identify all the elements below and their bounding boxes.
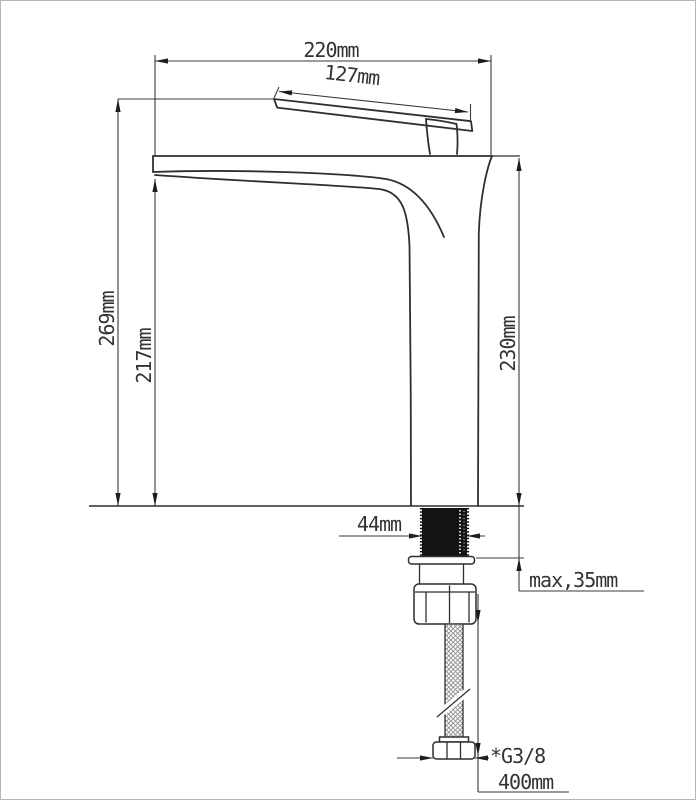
drawing-svg: 220mm 127mm 269mm 217mm 230mm 44mm max,3… bbox=[1, 1, 696, 800]
mounting-nut bbox=[414, 584, 476, 624]
faucet-technical-drawing: 220mm 127mm 269mm 217mm 230mm 44mm max,3… bbox=[0, 0, 696, 800]
dim-label-body-height: 230mm bbox=[496, 315, 520, 371]
dim-label-handle-length: 127mm bbox=[323, 60, 382, 90]
handle-lever bbox=[274, 99, 472, 131]
dim-label-stem-width: 44mm bbox=[357, 512, 402, 536]
mounting-assembly bbox=[409, 508, 477, 624]
dim-label-thread-size: *G3/8 bbox=[490, 744, 545, 768]
faucet-body-outline bbox=[153, 99, 520, 506]
clamp-flange bbox=[409, 557, 475, 565]
dim-label-hose-length: 400mm bbox=[498, 770, 554, 794]
supply-hose bbox=[433, 624, 475, 759]
dim-label-total-width: 220mm bbox=[303, 38, 359, 62]
dim-label-spout-height: 217mm bbox=[132, 327, 156, 383]
dim-label-max-counter-thickness: max,35mm bbox=[529, 568, 618, 592]
dim-label-total-height: 269mm bbox=[95, 290, 119, 346]
hose-hex-nut bbox=[433, 742, 475, 759]
dimension-lines bbox=[118, 55, 644, 792]
